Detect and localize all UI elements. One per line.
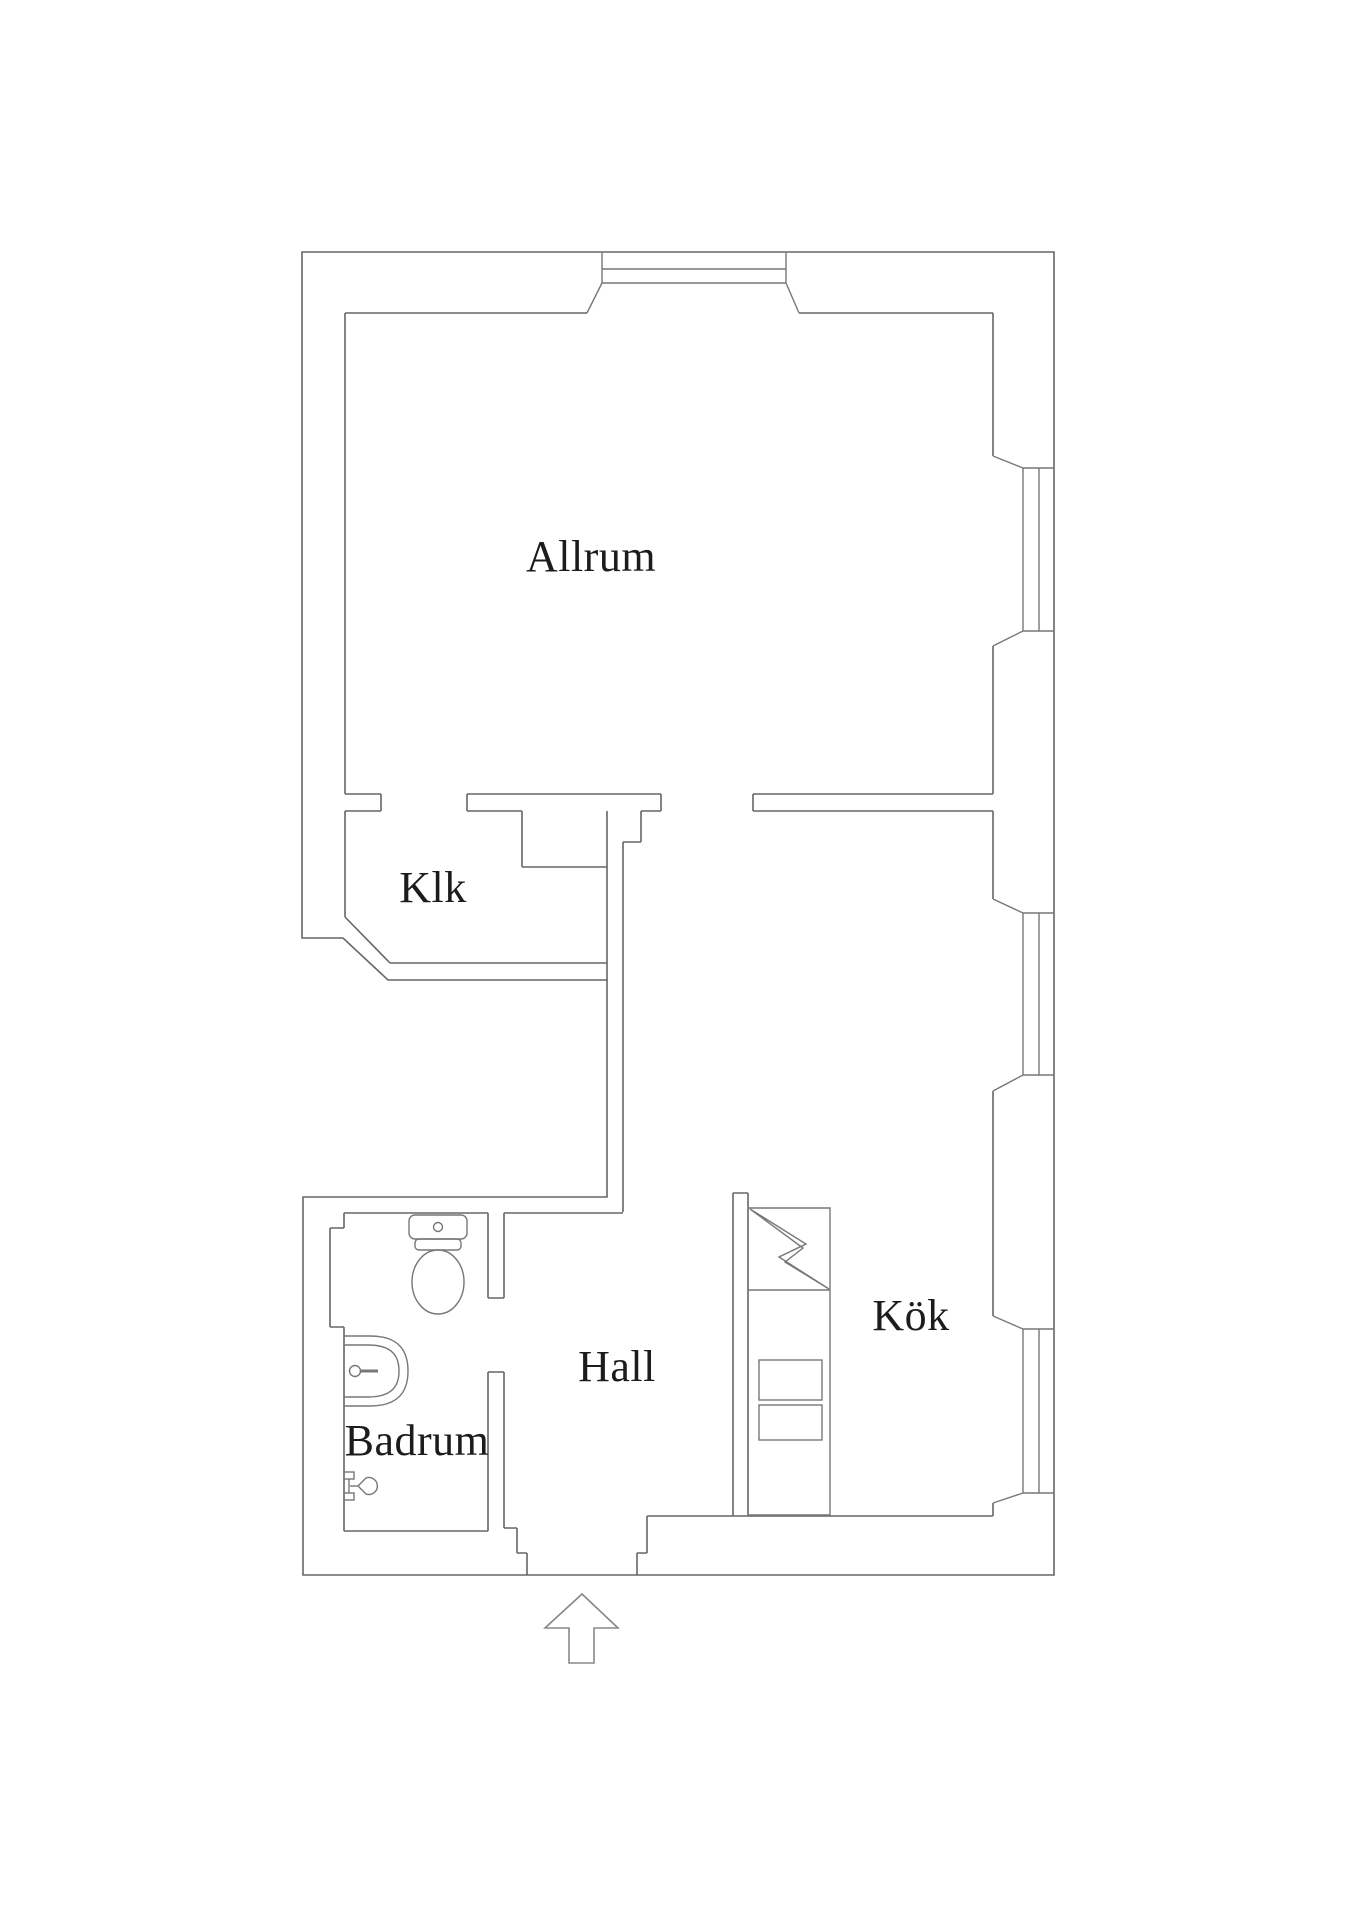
toilet-icon — [409, 1215, 467, 1314]
right-window-1-icon — [993, 456, 1054, 646]
drawer-icons — [759, 1360, 822, 1440]
floor-plan-drawing — [0, 0, 1357, 1920]
entrance-arrow-icon — [545, 1594, 618, 1663]
faucet-icon — [350, 1366, 379, 1377]
room-label-hall: Hall — [578, 1345, 656, 1389]
outer-walls — [302, 252, 1054, 1575]
shower-mixer-icon — [344, 1472, 377, 1500]
room-label-allrum: Allrum — [526, 535, 656, 579]
sink-icon — [344, 1336, 408, 1406]
room-label-badrum: Badrum — [345, 1419, 490, 1463]
lightning-icon — [750, 1209, 829, 1289]
room-label-kok: Kök — [872, 1294, 949, 1338]
room-label-klk: Klk — [399, 866, 467, 910]
right-window-2-icon — [993, 899, 1054, 1091]
floor-plan-page: Allrum Klk Hall Kök Badrum — [0, 0, 1357, 1920]
right-window-3-icon — [993, 1316, 1054, 1503]
bay-window-icon — [587, 252, 799, 313]
interior-walls — [330, 313, 993, 1575]
kitchen-unit — [748, 1208, 830, 1515]
